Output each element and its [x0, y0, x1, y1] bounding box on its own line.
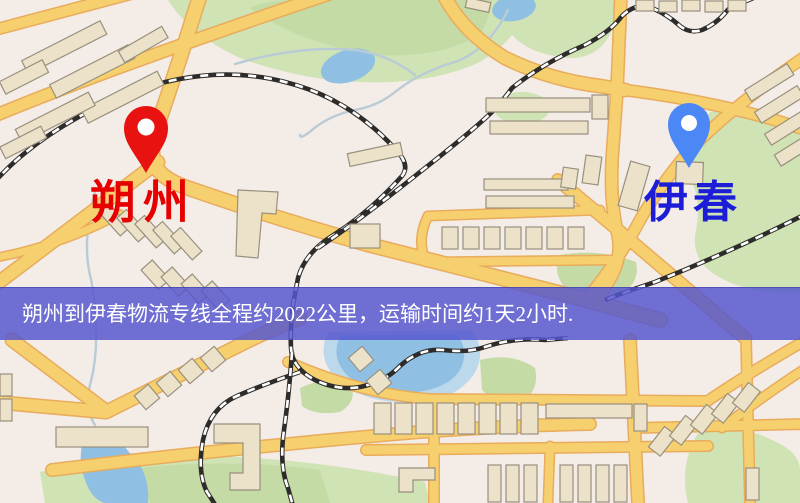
- map-container: 朔州 伊春 朔州到伊春物流专线全程约2022公里，运输时间约1天2小时.: [0, 0, 800, 503]
- route-info-text: 朔州到伊春物流专线全程约2022公里，运输时间约1天2小时.: [0, 288, 800, 340]
- origin-city-label: 朔州: [90, 180, 196, 226]
- destination-city-label: 伊春: [644, 181, 742, 225]
- route-info-banner: 朔州到伊春物流专线全程约2022公里，运输时间约1天2小时.: [0, 287, 800, 340]
- map-image: [0, 0, 800, 503]
